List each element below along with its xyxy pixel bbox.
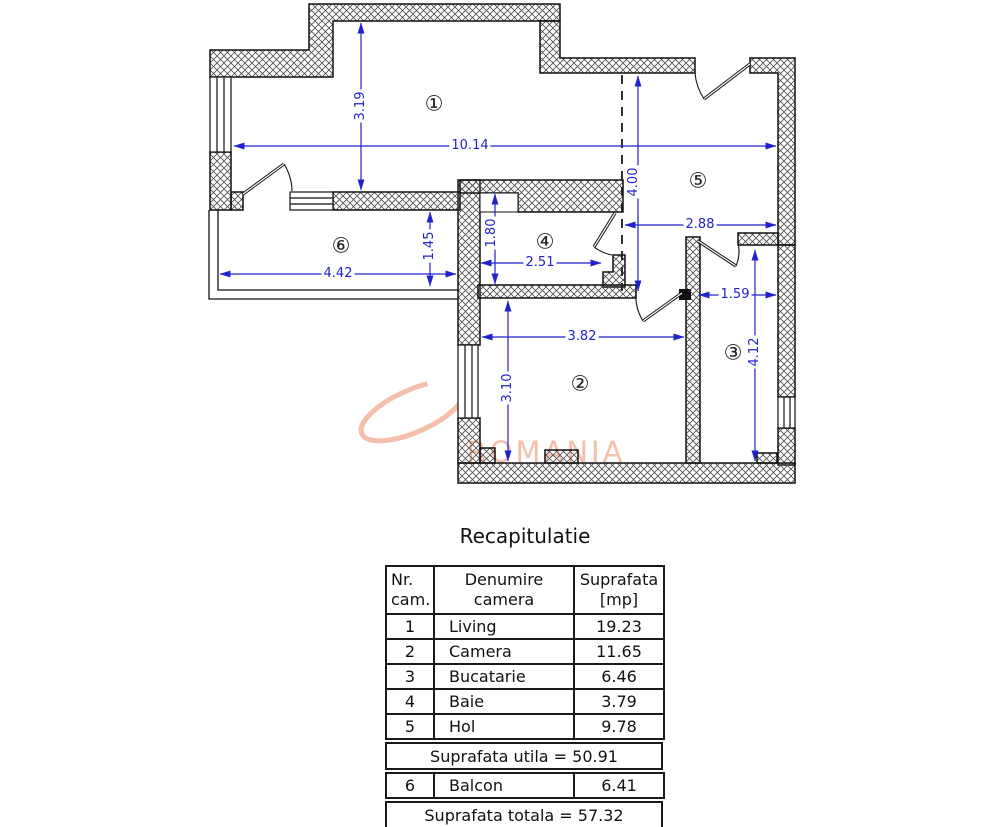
dimension-label: 1.80 [485,217,499,250]
door-entrance [695,64,750,99]
room-number-2: ② [571,374,590,395]
table-cell-name: Baie [434,689,574,714]
wall-segment [757,453,777,463]
table-cell-area: 9.78 [574,714,664,739]
table-cell-nr: 2 [386,639,434,664]
window-icon [210,77,231,152]
dimension-label: 1.45 [423,230,437,263]
wall-segment [540,21,695,73]
watermark-swoosh-icon [353,369,472,453]
dimension-label: 3.19 [354,90,368,123]
dimension-label: 4.00 [627,166,641,199]
table-row: 4Baie3.79 [386,689,664,714]
wall-segment [686,237,700,463]
table-cell-area: 19.23 [574,614,664,639]
recap-rows: 1Living19.232Camera11.653Bucatarie6.464B… [386,614,664,739]
table-row: 2Camera11.65 [386,639,664,664]
table-cell-nr: 3 [386,664,434,689]
table-cell-area: 11.65 [574,639,664,664]
suprafata-totala-text: Suprafata totala = 57.32 [386,802,662,827]
recap-section: Nr. cam. Denumire camera Suprafata [mp] … [385,565,663,827]
table-cell-nr: 5 [386,714,434,739]
recap-balcon-table: 6Balcon6.41 [385,772,665,799]
dimension-label: 10.14 [449,139,490,153]
door-camera [636,292,682,321]
wall-segment [750,58,795,245]
table-row: 3Bucatarie6.46 [386,664,664,689]
wall-segment [458,463,795,483]
table-cell-name: Bucatarie [434,664,574,689]
window-icon [290,192,333,210]
wall-segment [210,4,560,77]
wall-segment [738,233,778,245]
dimension-label: 3.82 [566,330,599,344]
table-row: Suprafata utila = 50.91 [386,743,662,769]
wall-segment [778,245,795,397]
table-cell-name: Living [434,614,574,639]
door-baie [594,213,615,255]
room-number-4: ④ [536,232,555,253]
table-cell-name: Camera [434,639,574,664]
recap-table: Nr. cam. Denumire camera Suprafata [mp] … [385,565,665,740]
wall-segment [231,192,243,210]
dimension-label: 1.59 [719,288,752,302]
wall-segment [480,448,495,463]
dimension-label: 4.12 [748,336,762,369]
wall-segment [778,428,795,465]
room-number-1: ① [425,94,444,115]
dimension-label: 2.88 [684,218,717,232]
walls [210,4,795,483]
wall-niche [480,193,518,212]
wall-segment [458,418,480,463]
suprafata-utila-text: Suprafata utila = 50.91 [386,743,662,769]
window-icon [458,345,478,418]
wall-segment [458,180,480,345]
table-header-row: Nr. cam. Denumire camera Suprafata [mp] [386,566,664,614]
table-cell-area: 3.79 [574,689,664,714]
dimension-label: 2.51 [524,256,557,270]
table-row: 5Hol9.78 [386,714,664,739]
door-bucatarie [698,241,739,266]
column-header-nr: Nr. cam. [386,566,434,614]
table-cell-name: Balcon [434,773,574,798]
column-header-denumire: Denumire camera [434,566,574,614]
wall-segment [478,285,636,298]
recap-subtotal-table: Suprafata utila = 50.91 [385,742,663,770]
dimension-label: 3.10 [501,372,515,405]
floorplan-page: ROMANIA [0,0,990,827]
wall-segment [210,152,231,210]
table-cell-area: 6.46 [574,664,664,689]
table-cell-name: Hol [434,714,574,739]
recap-total-table: Suprafata totala = 57.32 [385,801,663,827]
table-row: Suprafata totala = 57.32 [386,802,662,827]
door-balcony [243,164,292,194]
table-row: 1Living19.23 [386,614,664,639]
room-number-6: ⑥ [332,236,351,257]
balcon-row-container: 6Balcon6.41 [386,773,664,798]
table-cell-nr: 6 [386,773,434,798]
room-number-5: ⑤ [689,171,708,192]
table-cell-nr: 1 [386,614,434,639]
table-row: 6Balcon6.41 [386,773,664,798]
recap-title: Recapitulatie [460,524,591,548]
table-cell-area: 6.41 [574,773,664,798]
dimension-label: 4.42 [322,267,355,281]
column-header-suprafata: Suprafata [mp] [574,566,664,614]
table-cell-nr: 4 [386,689,434,714]
window-icon [778,397,795,428]
room-number-3: ③ [724,343,743,364]
wall-segment [333,192,460,210]
wall-segment [545,450,578,463]
